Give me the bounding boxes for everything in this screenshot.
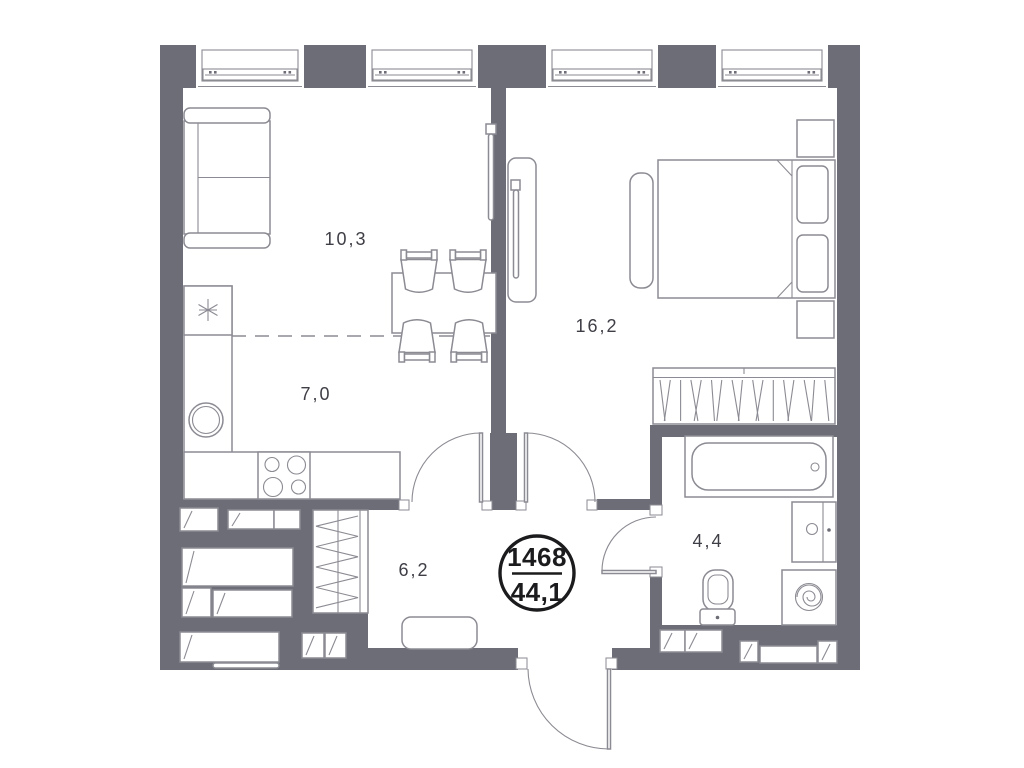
floor-plan: 10,3 7,0 16,2 6,2 4,4 1468 44,1 — [0, 0, 1024, 768]
window-latch-dot — [284, 71, 287, 74]
room-label-hallway: 6,2 — [398, 560, 429, 580]
storage-box — [660, 630, 685, 652]
window-latch-dot — [559, 71, 562, 74]
window-latch-dot — [638, 71, 641, 74]
stove — [258, 452, 310, 499]
bedroom-bench — [630, 173, 653, 288]
room-label-bathroom: 4,4 — [692, 531, 723, 551]
room-label-kitchen: 7,0 — [300, 384, 331, 404]
window-latch-dot — [729, 71, 732, 74]
wall-right — [837, 45, 860, 670]
storage-box — [182, 588, 211, 617]
bed — [658, 160, 835, 298]
room-label-living: 10,3 — [324, 229, 367, 249]
dining-chair — [451, 320, 487, 362]
storage-tray — [213, 663, 279, 668]
dining-chair — [450, 250, 486, 292]
window-latch-dot — [643, 71, 646, 74]
window-latch-dot — [813, 71, 816, 74]
washing-machine — [782, 570, 836, 625]
pillow-top — [797, 166, 828, 223]
hallway-bench — [402, 617, 477, 649]
bedroom-wardrobe — [653, 368, 835, 424]
window-1 — [196, 45, 304, 88]
window-2 — [366, 45, 478, 88]
sofa-armrest-top — [184, 108, 270, 123]
window-3 — [546, 45, 658, 88]
door-living-arc — [412, 433, 481, 502]
room-label-bedroom: 16,2 — [575, 316, 618, 336]
storage-box — [818, 641, 837, 663]
storage-box — [182, 548, 293, 586]
window-4 — [716, 45, 828, 88]
nightstand-bottom — [797, 301, 834, 338]
hallway-wardrobe — [313, 510, 368, 613]
storage-box — [325, 633, 346, 658]
window-latch-dot — [209, 71, 212, 74]
storage-box — [760, 646, 817, 663]
window-latch-dot — [808, 71, 811, 74]
wall-bedroom-bathroom — [650, 425, 860, 437]
storage-box — [740, 641, 758, 662]
unit-number: 1468 — [507, 542, 567, 572]
sofa — [184, 108, 270, 248]
dining-chair — [399, 320, 435, 362]
window-latch-dot — [734, 71, 737, 74]
storage-box — [180, 632, 279, 662]
storage-box — [685, 630, 722, 652]
window-latch-dot — [214, 71, 217, 74]
storage-box — [228, 510, 274, 529]
unit-badge: 1468 44,1 — [500, 536, 574, 610]
bathtub — [685, 436, 833, 497]
door-living — [412, 433, 483, 502]
bathroom-sink — [792, 502, 836, 562]
sofa-armrest-bottom — [184, 233, 270, 248]
floor-plan-canvas: 10,3 7,0 16,2 6,2 4,4 1468 44,1 — [0, 0, 1024, 768]
door-bedroom — [525, 433, 596, 502]
toilet — [700, 570, 735, 625]
door-bedroom-arc — [526, 433, 595, 502]
wall-bathroom-hall-upper — [650, 437, 662, 507]
window-latch-dot — [379, 71, 382, 74]
window-latch-dot — [463, 71, 466, 74]
door-bathroom-arc — [602, 517, 656, 571]
door-bathroom — [602, 517, 656, 574]
bedroom — [508, 120, 835, 424]
unit-area: 44,1 — [511, 577, 564, 607]
nightstand-top — [797, 120, 834, 157]
window-latch-dot — [564, 71, 567, 74]
storage-box — [213, 590, 292, 617]
door-entrance — [528, 669, 611, 749]
window-latch-dot — [458, 71, 461, 74]
storage-box — [180, 508, 218, 531]
storage-box — [302, 633, 324, 658]
storage-box — [274, 510, 300, 529]
door-entrance-leaf — [608, 669, 611, 749]
door-living-leaf — [480, 433, 483, 502]
window-latch-dot — [289, 71, 292, 74]
pillow-bottom — [797, 235, 828, 292]
door-entrance-arc — [528, 669, 609, 749]
door-bedroom-leaf — [525, 433, 528, 502]
dining-chair — [401, 250, 437, 292]
window-latch-dot — [384, 71, 387, 74]
door-bathroom-leaf — [602, 571, 656, 574]
wall-door-stub — [490, 433, 517, 510]
